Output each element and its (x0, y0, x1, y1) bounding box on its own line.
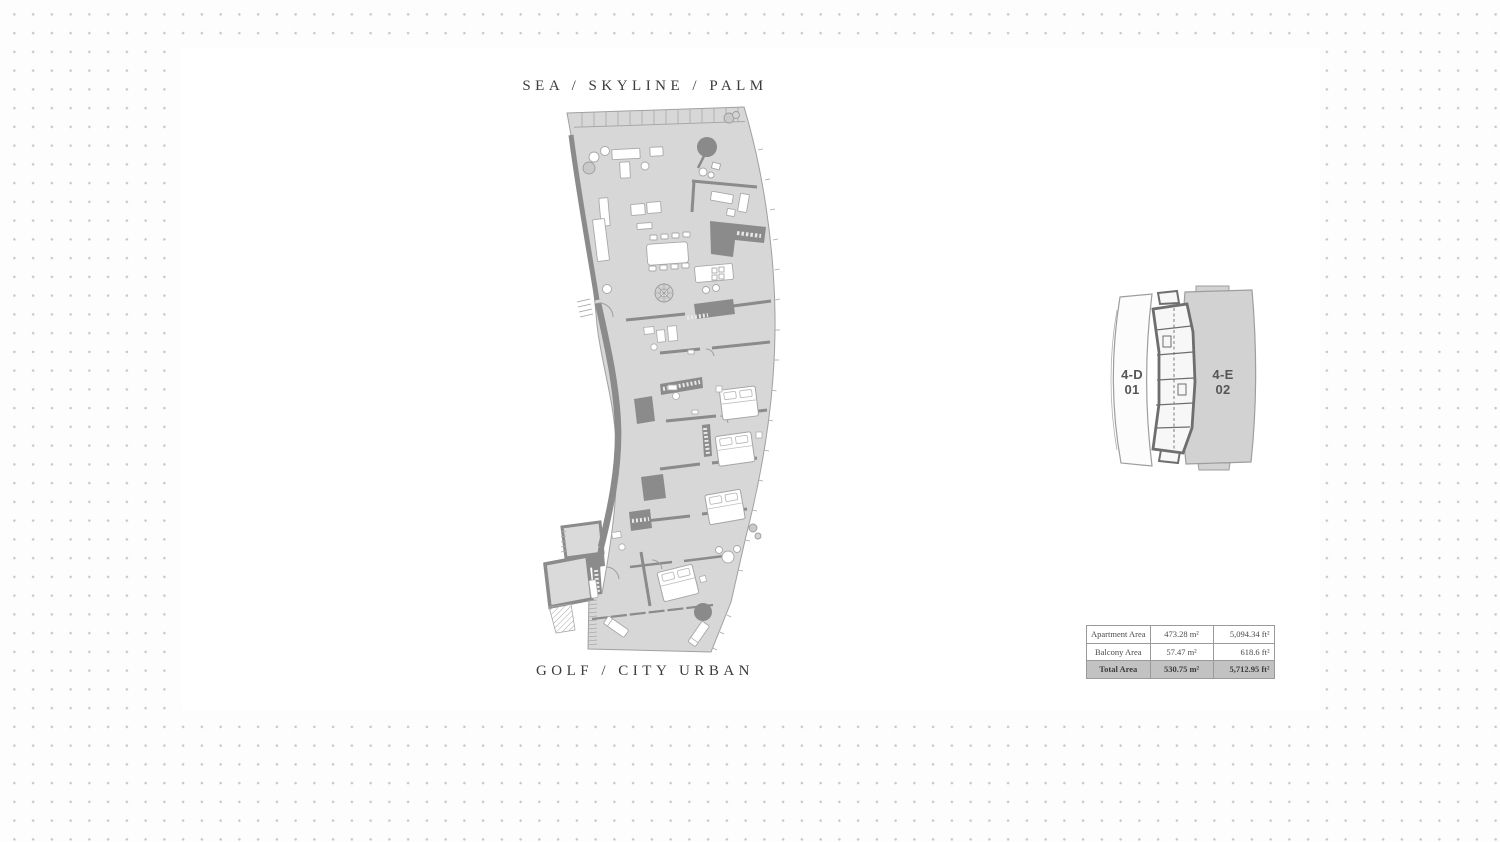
area-label-cell: Apartment Area (1087, 626, 1151, 644)
key-plan-unit-4d-label: 4-D 01 (1111, 367, 1153, 397)
orientation-label-bottom: GOLF / CITY URBAN (440, 663, 850, 680)
unit-number: 02 (1202, 382, 1244, 397)
key-plan-unit-4e-label: 4-E 02 (1202, 367, 1244, 397)
area-metric-cell: 473.28 m² (1150, 626, 1213, 644)
area-imperial-cell: 5,094.34 ft² (1213, 626, 1274, 644)
floorplan-page: { "page": { "width": 1500, "height": 842… (0, 0, 1500, 842)
unit-number: 01 (1111, 382, 1153, 397)
area-label-cell: Total Area (1087, 661, 1151, 679)
unit-code: 4-E (1202, 367, 1244, 382)
table-row: Apartment Area 473.28 m² 5,094.34 ft² (1087, 626, 1275, 644)
table-row-total: Total Area 530.75 m² 5,712.95 ft² (1087, 661, 1275, 679)
area-imperial-cell: 5,712.95 ft² (1213, 661, 1274, 679)
unit-code: 4-D (1111, 367, 1153, 382)
area-imperial-cell: 618.6 ft² (1213, 643, 1274, 661)
key-plan-core (1153, 291, 1195, 463)
area-metric-cell: 530.75 m² (1150, 661, 1213, 679)
floor-plan-drawing (540, 95, 800, 675)
area-label-cell: Balcony Area (1087, 643, 1151, 661)
table-row: Balcony Area 57.47 m² 618.6 ft² (1087, 643, 1275, 661)
orientation-label-top: SEA / SKYLINE / PALM (440, 78, 850, 95)
area-table: Apartment Area 473.28 m² 5,094.34 ft² Ba… (1086, 625, 1275, 679)
area-metric-cell: 57.47 m² (1150, 643, 1213, 661)
